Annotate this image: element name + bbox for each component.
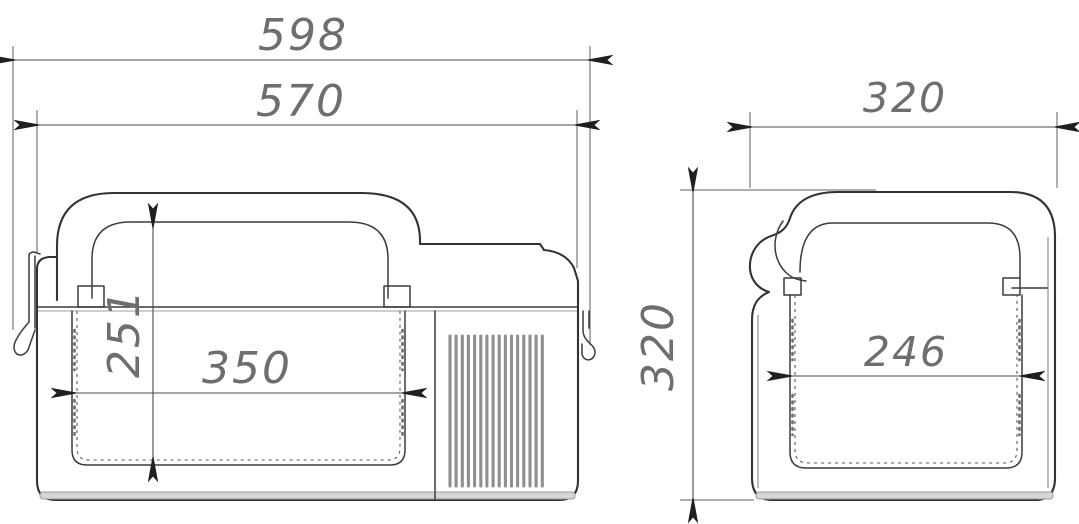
technical-drawing-canvas: 598 570 251 350 [0,0,1079,524]
dim-label-lid-width: 570 [256,76,346,127]
dim-label-overall-depth: 320 [863,74,947,122]
base-strip [40,492,575,499]
dim-label-inner-depth: 246 [864,328,948,376]
side-base-strip [756,492,1053,499]
side-hinge-right [1003,278,1020,295]
dim-label-inner-height: 251 [99,288,150,378]
dim-label-overall-width: 598 [258,10,348,61]
side-hinge-left [784,278,801,295]
front-view: 598 570 251 350 [13,10,595,500]
lid-left-edge [37,257,57,307]
vent-grille [450,336,542,486]
side-view: 320 320 246 [633,74,1057,500]
side-inner-compartment [790,295,1022,468]
dim-label-overall-height: 320 [633,301,684,391]
carry-bail-right [582,311,595,360]
handle-inner-arch [92,222,388,298]
cooler-dimension-drawing: 598 570 251 350 [0,0,1079,524]
side-inner-compartment-wall [795,295,1017,463]
dim-label-inner-width: 350 [202,343,292,394]
